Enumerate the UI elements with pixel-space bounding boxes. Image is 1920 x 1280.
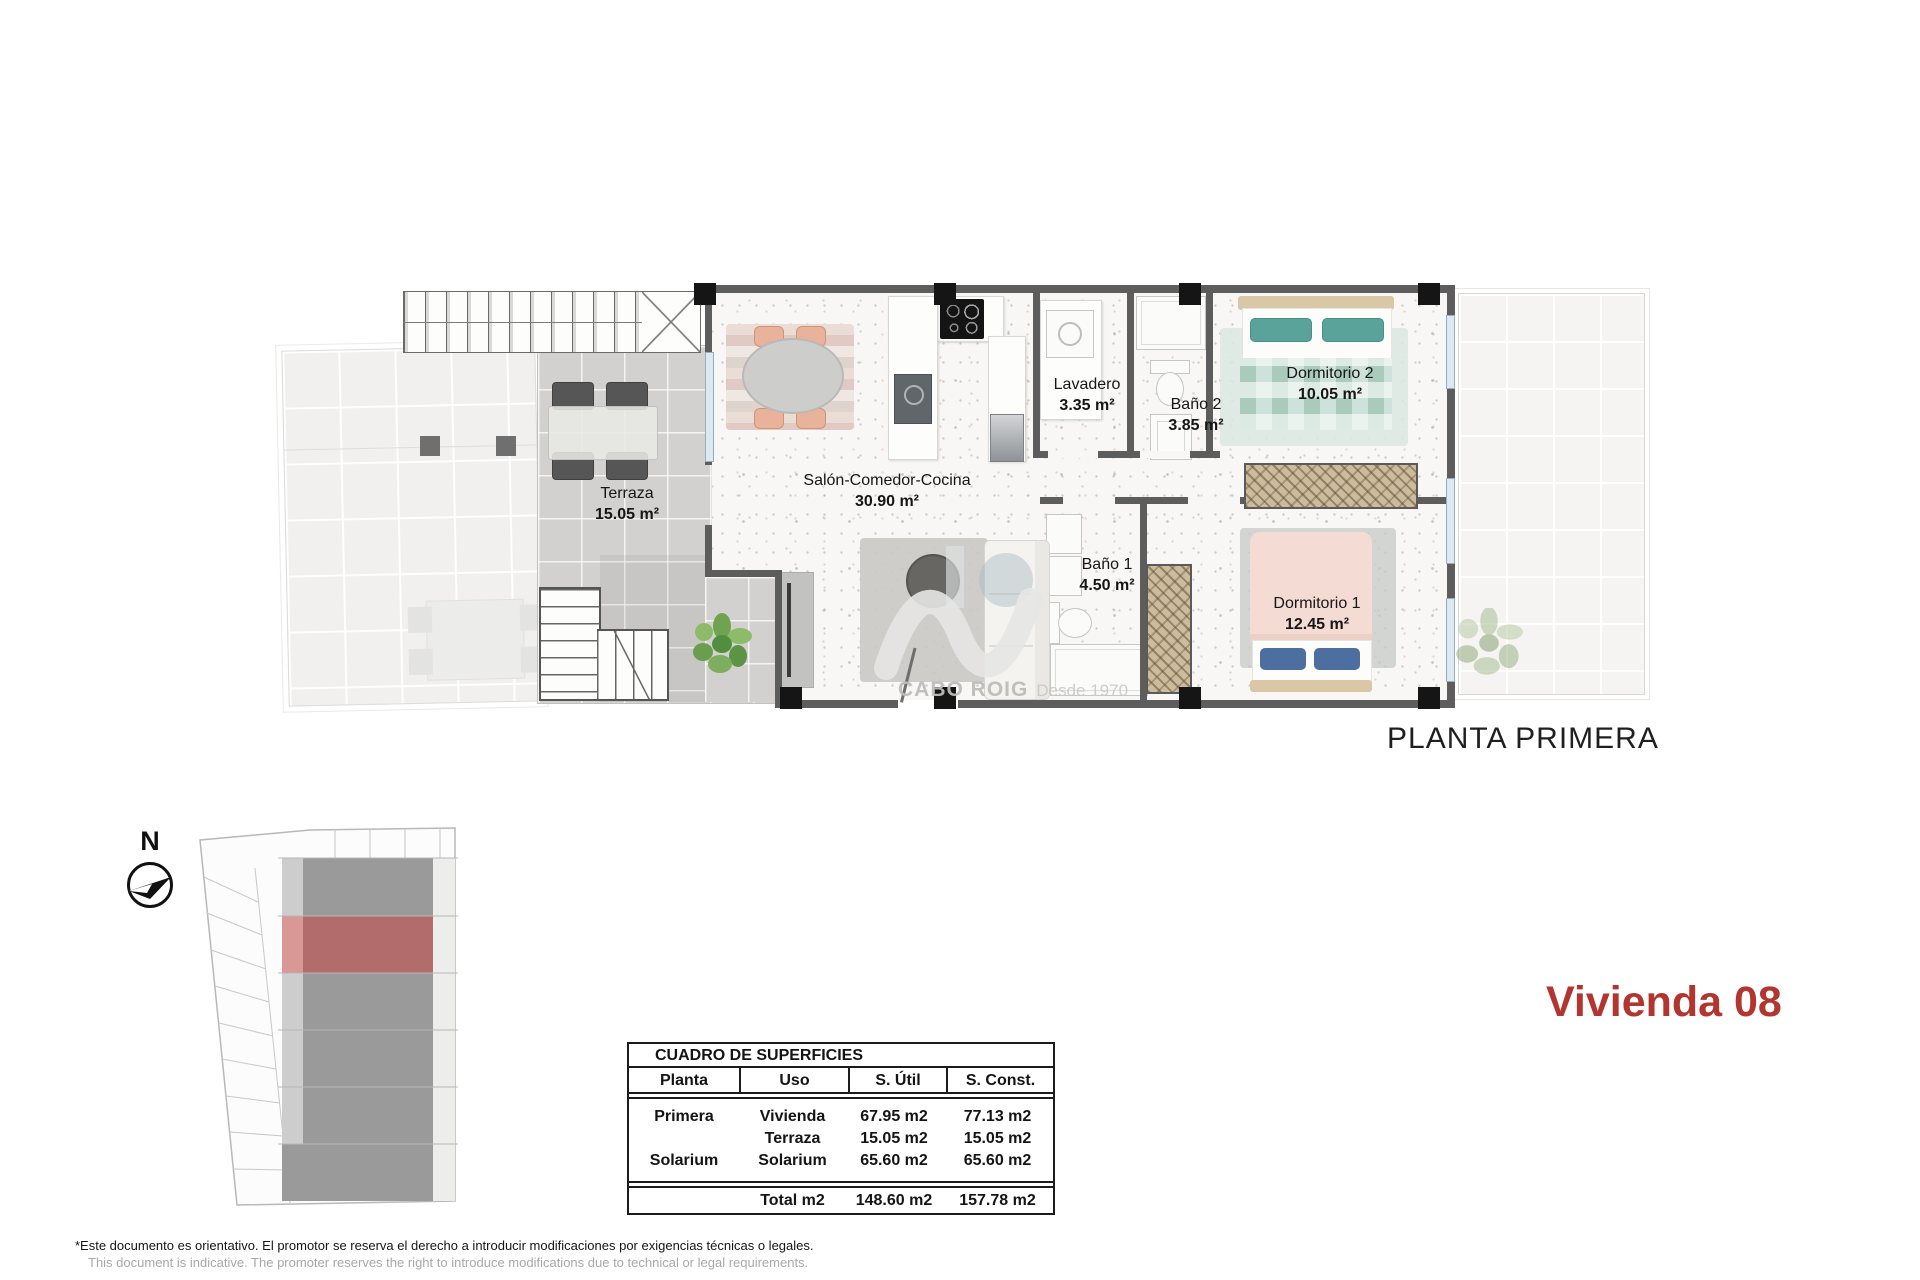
kitchen-sink — [894, 374, 932, 424]
room-label-bano1: Baño 1 4.50 m² — [1079, 554, 1134, 596]
faded-table — [426, 599, 526, 681]
door-gap — [1048, 451, 1098, 458]
plan-title: PLANTA PRIMERA — [1387, 722, 1659, 756]
room-area: 3.35 m² — [1054, 395, 1121, 416]
wall-step — [705, 570, 782, 577]
room-label-lavadero: Lavadero 3.35 m² — [1054, 374, 1121, 416]
cell-const: 15.05 m2 — [942, 1128, 1053, 1150]
surface-table-header: Planta Uso S. Útil S. Const. — [629, 1068, 1053, 1094]
wardrobe — [1146, 564, 1192, 694]
tv-screen — [787, 583, 791, 677]
column-gray — [496, 436, 516, 456]
palm-icon — [1452, 608, 1526, 678]
room-label-terraza: Terraza 15.05 m² — [595, 483, 659, 525]
surface-table-total-row: Total m2 148.60 m2 157.78 m2 — [629, 1186, 1053, 1213]
cell-uso: Terraza — [739, 1128, 846, 1150]
watermark-tagline: Desde 1970 — [1036, 681, 1128, 700]
footboard — [1250, 680, 1372, 692]
unit-title: Vivienda 08 — [1546, 978, 1782, 1027]
cell-planta: Primera — [629, 1106, 739, 1128]
wall-lavadero-bano2 — [1127, 293, 1134, 451]
room-area: 3.85 m² — [1168, 415, 1223, 436]
column — [1418, 283, 1440, 305]
stair-landing — [642, 292, 700, 352]
room-name: Baño 2 — [1168, 394, 1223, 415]
total-label: Total m2 — [739, 1188, 846, 1213]
wall-kitchen-lavadero — [1033, 293, 1040, 458]
column — [694, 283, 716, 305]
room-name: Dormitorio 2 — [1286, 363, 1373, 384]
surface-table-title: CUADRO DE SUPERFICIES — [629, 1044, 1053, 1068]
pillow — [1314, 648, 1360, 670]
cell-util: 65.60 m2 — [846, 1150, 942, 1172]
brochure-page: CABO ROIGDesde 1970 Terraza 15.05 m² Sal… — [0, 0, 1920, 1280]
room-name: Dormitorio 1 — [1273, 593, 1360, 614]
window — [1446, 315, 1455, 389]
watermark-text: CABO ROIGDesde 1970 — [898, 678, 1128, 702]
room-name: Terraza — [595, 483, 659, 504]
door-gap — [1188, 497, 1240, 504]
cell-uso: Solarium — [739, 1150, 846, 1172]
north-label: N — [140, 826, 160, 856]
oven-appliance — [990, 414, 1024, 462]
room-area: 4.50 m² — [1079, 575, 1134, 596]
column — [1418, 687, 1440, 709]
total-util: 148.60 m2 — [846, 1188, 942, 1213]
disclaimer: *Este documento es orientativo. El promo… — [75, 1238, 814, 1270]
shower-inner — [1141, 301, 1201, 345]
pillow — [1260, 648, 1306, 670]
room-area: 30.90 m² — [803, 491, 970, 512]
room-name: Baño 1 — [1079, 554, 1134, 575]
room-label-dormitorio1: Dormitorio 1 12.45 m² — [1273, 593, 1360, 635]
disclaimer-english: This document is indicative. The promote… — [88, 1255, 814, 1270]
column — [1179, 687, 1201, 709]
faded-chair — [409, 649, 434, 675]
room-area: 15.05 m² — [595, 504, 659, 525]
watermark-logo — [858, 518, 1068, 688]
window — [705, 352, 714, 462]
room-area: 10.05 m² — [1286, 384, 1373, 405]
column — [934, 283, 956, 305]
column-header-uso: Uso — [741, 1068, 850, 1092]
watermark-brand: CABO ROIG — [898, 678, 1028, 701]
room-name: Lavadero — [1054, 374, 1121, 395]
faded-chair — [408, 607, 433, 633]
total-const: 157.78 m2 — [942, 1188, 1053, 1213]
dining-table — [742, 338, 844, 414]
left-solarium-floor — [281, 345, 542, 706]
room-name: Salón-Comedor-Cocina — [803, 470, 970, 491]
cell-empty — [629, 1188, 739, 1213]
exterior-stairs — [403, 291, 701, 353]
table-row: Terraza 15.05 m2 15.05 m2 — [629, 1128, 1053, 1150]
room-area: 12.45 m² — [1273, 614, 1360, 635]
interior-stairs-turn — [597, 629, 669, 701]
surface-table: CUADRO DE SUPERFICIES Planta Uso S. Útil… — [627, 1042, 1055, 1215]
column-gray — [420, 436, 440, 456]
room-label-dormitorio2: Dormitorio 2 10.05 m² — [1286, 363, 1373, 405]
site-plan-diagram — [190, 818, 475, 1218]
disclaimer-spanish: *Este documento es orientativo. El promo… — [75, 1238, 814, 1253]
column-header-sutil: S. Útil — [850, 1068, 948, 1092]
column-header-planta: Planta — [629, 1068, 741, 1092]
door-gap — [1063, 497, 1115, 504]
sink-basin — [904, 385, 924, 405]
cell-planta: Solarium — [629, 1150, 739, 1172]
column — [1179, 283, 1201, 305]
window — [1446, 598, 1455, 682]
column-header-sconst: S. Const. — [948, 1068, 1053, 1092]
column — [780, 687, 802, 709]
cooktop — [940, 299, 984, 339]
washing-machine — [1046, 310, 1094, 358]
washer-door — [1058, 322, 1082, 346]
interior-stairs-run — [539, 587, 601, 701]
cell-const: 65.60 m2 — [942, 1150, 1053, 1172]
pillow — [1250, 318, 1312, 342]
cell-const: 77.13 m2 — [942, 1106, 1053, 1128]
cell-util: 67.95 m2 — [846, 1106, 942, 1128]
plant-icon — [690, 612, 754, 676]
window — [1446, 478, 1455, 564]
room-label-salon: Salón-Comedor-Cocina 30.90 m² — [803, 470, 970, 512]
terrace-table — [548, 406, 658, 460]
door-gap — [1140, 451, 1190, 458]
cell-planta — [629, 1128, 739, 1150]
pillow — [1322, 318, 1384, 342]
cell-util: 15.05 m2 — [846, 1128, 942, 1150]
table-row: Primera Vivienda 67.95 m2 77.13 m2 — [629, 1106, 1053, 1128]
wardrobe — [1244, 463, 1418, 509]
tv-unit — [780, 572, 814, 688]
wall-top — [700, 285, 1455, 293]
cell-uso: Vivienda — [739, 1106, 846, 1128]
room-label-bano2: Baño 2 3.85 m² — [1168, 394, 1223, 436]
north-compass: N — [112, 824, 188, 920]
surface-table-body: Primera Vivienda 67.95 m2 77.13 m2 Terra… — [629, 1097, 1053, 1183]
table-row: Solarium Solarium 65.60 m2 65.60 m2 — [629, 1150, 1053, 1172]
